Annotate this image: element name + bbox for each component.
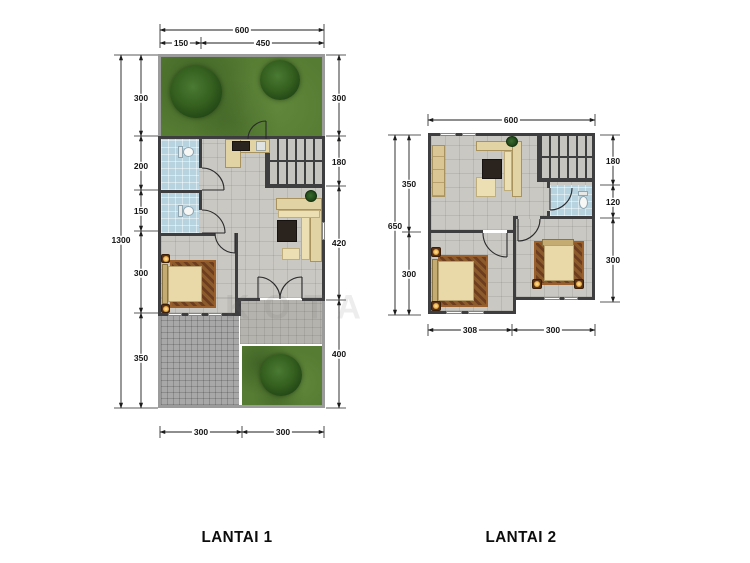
floor1-carport (161, 315, 239, 405)
wall (158, 233, 215, 236)
dim-label: 400 (330, 350, 348, 359)
wall (199, 193, 202, 210)
floor2-stairs-landing-edge (537, 178, 592, 182)
dim-label: 150 (172, 39, 190, 48)
window (322, 222, 325, 240)
lamp (576, 281, 582, 287)
lamp (433, 249, 439, 255)
floor2-title: LANTAI 2 (485, 529, 556, 547)
wall (158, 136, 161, 316)
dim-label: 350 (132, 354, 150, 363)
floor2-stairs-mid-line (540, 156, 592, 158)
lamp (534, 281, 540, 287)
dim-label: 450 (254, 39, 272, 48)
floor2-stairs (540, 136, 592, 180)
dim-label: 1300 (110, 236, 133, 245)
dim-label: 300 (132, 94, 150, 103)
window (564, 297, 578, 300)
dim-label: 300 (604, 256, 622, 265)
window (208, 313, 222, 316)
stove (232, 141, 250, 151)
dim-label: 150 (132, 207, 150, 216)
sofa-back-vertical (512, 141, 522, 197)
dim-label: 180 (604, 157, 622, 166)
window (462, 133, 476, 136)
floor1-plan (158, 54, 325, 408)
tree (260, 354, 302, 396)
dim-label: 300 (330, 94, 348, 103)
dim-label: 300 (400, 270, 418, 279)
floor1-stairs-mid-line (268, 160, 322, 162)
wall (428, 133, 431, 314)
coffee-table (277, 220, 297, 242)
sofa-seats-vertical (301, 212, 310, 260)
bed (438, 261, 474, 301)
window (544, 297, 560, 300)
dim-label: 350 (400, 180, 418, 189)
plant (305, 190, 317, 202)
wardrobe (432, 145, 445, 197)
watermark-text: KOTA (225, 289, 375, 328)
bed (168, 266, 202, 302)
dim-label: 120 (604, 198, 622, 207)
wall (158, 190, 202, 193)
dim-label: 600 (233, 26, 251, 35)
sofa-seats-vertical (504, 151, 512, 191)
wall (513, 219, 516, 314)
lamp (433, 303, 439, 309)
dim-label: 300 (192, 428, 210, 437)
dim-label: 300 (274, 428, 292, 437)
wall (547, 182, 550, 188)
toilet-bowl (183, 147, 194, 157)
wall (513, 216, 518, 219)
lamp (163, 306, 169, 312)
window (446, 311, 462, 314)
lamp (163, 256, 169, 262)
window (168, 313, 182, 316)
wall (428, 230, 483, 233)
ottoman (282, 248, 300, 260)
floor1-title: LANTAI 1 (201, 529, 272, 547)
dimension-lines-and-door-swings (0, 0, 750, 563)
sofa-chaise (476, 177, 496, 197)
window (440, 133, 456, 136)
tree (170, 66, 222, 118)
wall (540, 216, 595, 219)
floor1-stairs-landing-edge (265, 184, 322, 188)
dim-label: 420 (330, 239, 348, 248)
toilet-bowl (579, 196, 588, 209)
coffee-table (482, 159, 502, 179)
dim-label: 200 (132, 162, 150, 171)
bed (544, 245, 574, 281)
window (188, 313, 202, 316)
tree (260, 60, 300, 100)
dim-label: 650 (386, 222, 404, 231)
wall (322, 136, 325, 301)
dim-label: 300 (132, 269, 150, 278)
dim-label: 180 (330, 158, 348, 167)
floorplan-canvas: KOTA 600 150 450 1300 300 200 150 300 35… (0, 0, 750, 563)
dim-label: 300 (544, 326, 562, 335)
dim-label: 308 (461, 326, 479, 335)
plant (506, 136, 518, 147)
dim-label: 600 (502, 116, 520, 125)
wall (199, 139, 202, 168)
window (468, 311, 484, 314)
wall (547, 211, 550, 216)
kitchen-sink (256, 141, 266, 151)
floor2-plan (428, 133, 595, 316)
wall (537, 136, 540, 182)
toilet-bowl (183, 206, 194, 216)
sofa-seats-horizontal (278, 210, 320, 218)
